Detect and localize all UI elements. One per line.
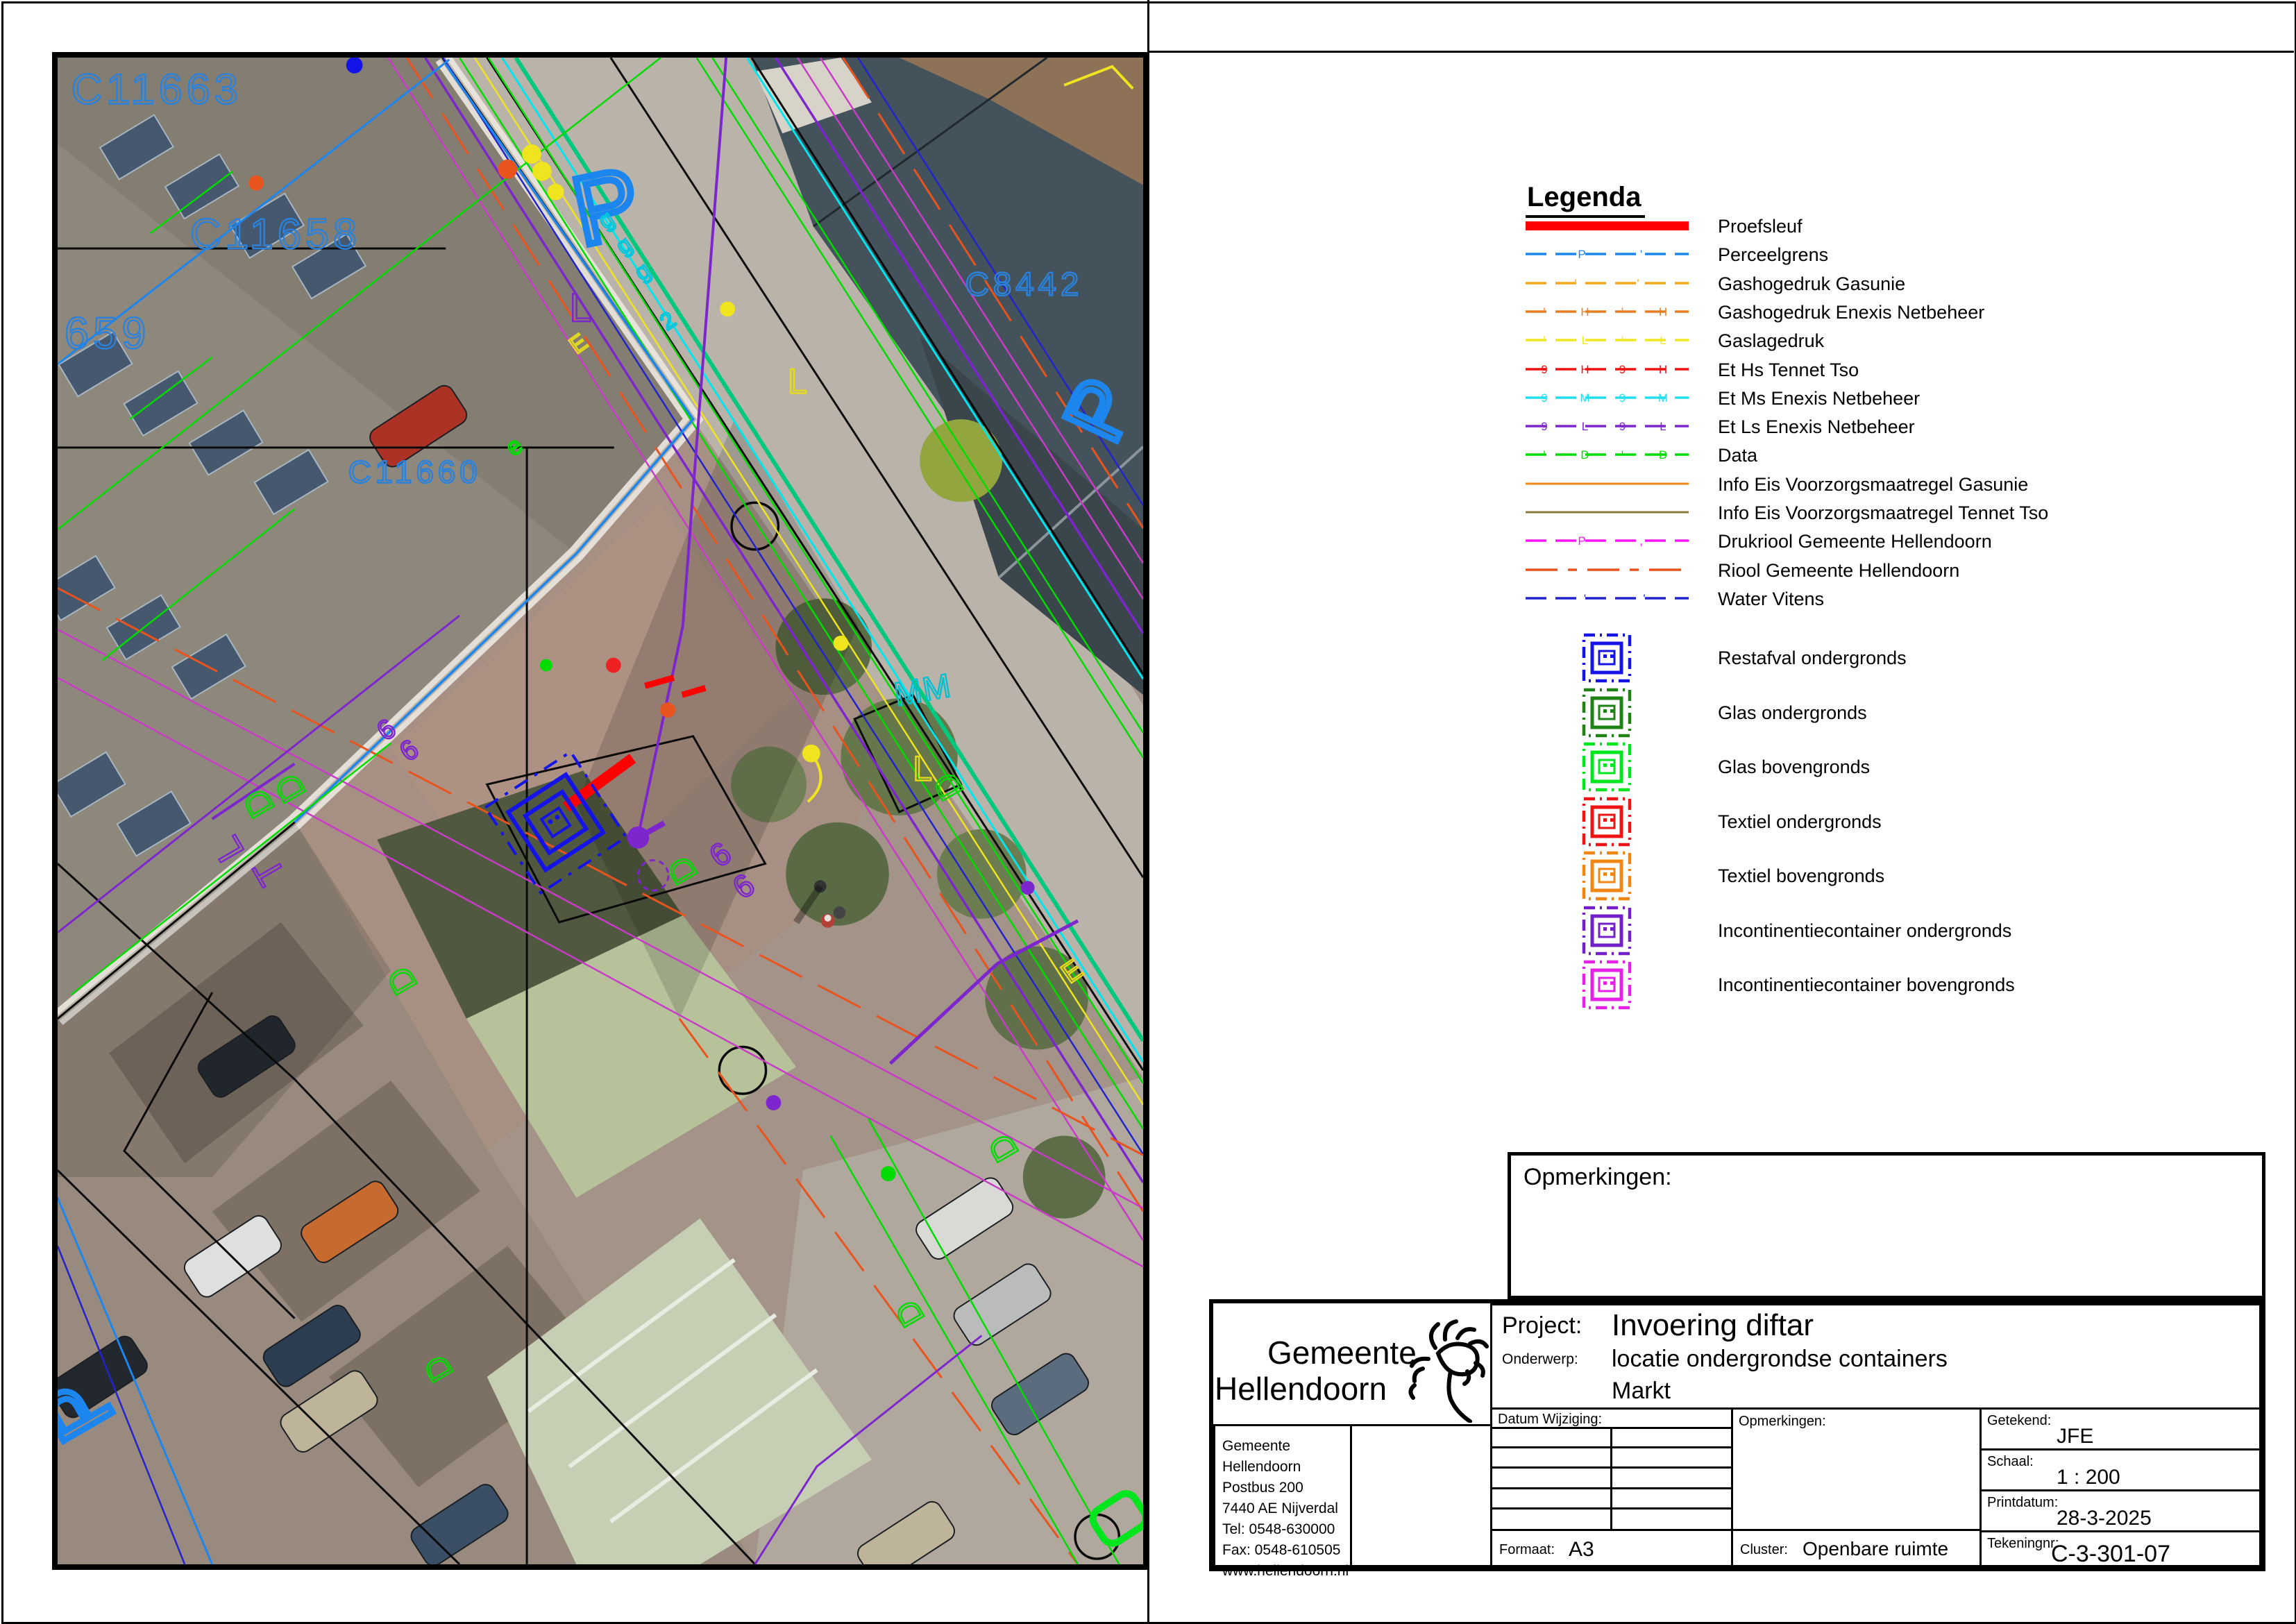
svg-text:': ' — [1543, 305, 1545, 319]
svg-text:': ' — [1621, 448, 1623, 462]
map-label: C11658 — [190, 210, 361, 258]
legend-line-sample — [1526, 214, 1689, 237]
svg-text:D: D — [1580, 448, 1589, 462]
container-symbol-icon — [1581, 850, 1632, 902]
formaat-cell: Formaat: A3 — [1490, 1529, 1733, 1567]
legend-line-sample — [1526, 501, 1689, 523]
schaal-cell: Schaal: 1 : 200 — [1980, 1448, 2261, 1491]
legend-item-label: Drukriool Gemeente Hellendoorn — [1718, 531, 1992, 552]
legend-item-label: Incontinentiecontainer ondergronds — [1718, 920, 2011, 942]
notes-label: Opmerkingen: — [1523, 1164, 1672, 1191]
legend-line-sample: 9L9L — [1526, 415, 1689, 437]
legend-item-label: Et Ls Enexis Netbeheer — [1718, 416, 1915, 438]
container-symbol-icon — [1581, 905, 1632, 956]
container-symbol-icon — [1581, 632, 1632, 684]
legend-item-label: Riool Gemeente Hellendoorn — [1718, 560, 1959, 582]
aerial-map: C11663C11658659C11660C8442PPPMMLLEE6666g… — [52, 52, 1149, 1570]
hellendoorn-deer-logo — [1387, 1305, 1491, 1423]
svg-text:L: L — [1582, 420, 1588, 433]
cluster-value: Openbare ruimte — [1803, 1538, 1948, 1560]
svg-text:': ' — [1543, 334, 1545, 347]
legend-item-label: Proefsleuf — [1718, 216, 1803, 237]
org-address: Gemeente Hellendoorn Postbus 200 7440 AE… — [1222, 1436, 1350, 1582]
container-symbol-icon — [1581, 687, 1632, 738]
svg-text:': ' — [1621, 305, 1623, 319]
printdatum-label: Printdatum: — [1987, 1495, 2058, 1511]
svg-text:L: L — [1660, 334, 1666, 347]
svg-text:,: , — [1639, 534, 1643, 548]
legend-item-label: Water Vitens — [1718, 589, 1824, 610]
subject-value-1: locatie ondergrondse containers — [1612, 1346, 1948, 1373]
container-symbol-icon — [1581, 796, 1632, 847]
datum-row-cell — [1490, 1446, 1612, 1469]
legend-item-label: Restafval ondergronds — [1718, 648, 1907, 669]
datum-row-cell — [1490, 1466, 1612, 1489]
svg-text:M: M — [1658, 391, 1668, 405]
tekeningnr-value: C-3-301-07 — [2051, 1541, 2170, 1568]
legend-line-sample: P, — [1526, 530, 1689, 552]
svg-text:D: D — [1659, 448, 1667, 462]
svg-text:H: H — [1659, 363, 1667, 376]
printdatum-value: 28-3-2025 — [2057, 1507, 2152, 1530]
legend-line-sample: 'D'D — [1526, 443, 1689, 466]
datum-row-cell — [1610, 1427, 1733, 1448]
subject-label: Onderwerp: — [1502, 1351, 1578, 1368]
svg-text:9: 9 — [1541, 420, 1547, 433]
legend-title: Legenda — [1526, 182, 1645, 218]
aerial-map-canvas: C11663C11658659C11660C8442PPPMMLLEE6666g… — [58, 58, 1143, 1564]
map-label: L — [569, 286, 593, 330]
legend-item-label: Perceelgrens — [1718, 244, 1828, 266]
legend-item-label: Gashogedruk Enexis Netbeheer — [1718, 302, 1984, 323]
legend-line-sample: P' — [1526, 243, 1689, 265]
legend-line-sample: 'L'L — [1526, 329, 1689, 351]
svg-text:H: H — [1659, 305, 1667, 319]
notes-box: Opmerkingen: — [1508, 1152, 2265, 1299]
legend-item-label: Gashogedruk Gasunie — [1718, 273, 1905, 295]
tekeningnr-label: Tekeningnr: — [1987, 1536, 2059, 1552]
datum-wijziging-label: Datum Wijziging: — [1498, 1412, 1602, 1428]
tb-opmerkingen-cell: Opmerkingen: — [1731, 1407, 1982, 1531]
legend-line-sample: '' — [1526, 272, 1689, 294]
datum-row-cell — [1610, 1507, 1733, 1531]
svg-text:': ' — [1640, 248, 1642, 261]
cluster-label: Cluster: — [1740, 1542, 1788, 1558]
legend-item-label: Et Hs Tennet Tso — [1718, 360, 1859, 381]
printdatum-cell: Printdatum: 28-3-2025 — [1980, 1489, 2261, 1532]
cluster-cell: Cluster: Openbare ruimte — [1731, 1529, 1982, 1567]
svg-text:P: P — [1578, 248, 1585, 261]
svg-text:L: L — [1660, 420, 1666, 433]
map-label: C11660 — [348, 454, 482, 489]
datum-row-cell — [1610, 1487, 1733, 1509]
legend-item-label: Gaslagedruk — [1718, 330, 1824, 352]
svg-text:': ' — [1574, 277, 1576, 290]
org-logo-cell: Gemeente Hellendoorn — [1213, 1303, 1492, 1424]
legend-item-label: Info Eis Voorzorgsmaatregel Gasunie — [1718, 474, 2028, 496]
legend-item-label: Data — [1718, 445, 1757, 466]
map-label: C11663 — [71, 65, 242, 113]
formaat-label: Formaat: — [1499, 1542, 1555, 1558]
legend-item-label: Et Ms Enexis Netbeheer — [1718, 388, 1920, 409]
title-block: Gemeente Hellendoorn Gemeente Hellendoor… — [1209, 1299, 2265, 1571]
datum-wijziging-header: Datum Wijziging: — [1490, 1407, 1733, 1429]
legend-item-label: Glas ondergronds — [1718, 702, 1867, 724]
empty-cell — [1350, 1424, 1492, 1567]
project-cell: Project: Invoering diftar Onderwerp: loc… — [1490, 1303, 2261, 1410]
org-name-line2: Hellendoorn — [1215, 1370, 1387, 1407]
svg-text:': ' — [1621, 334, 1623, 347]
container-symbol-icon — [1581, 741, 1632, 793]
map-label: 659 — [65, 310, 151, 358]
svg-text:': ' — [1543, 448, 1545, 462]
legend-line-sample: 9M9M — [1526, 387, 1689, 409]
getekend-cell: Getekend: JFE — [1980, 1407, 2261, 1450]
container-symbol-icon — [1581, 959, 1632, 1010]
svg-text:9: 9 — [1619, 420, 1626, 433]
formaat-value: A3 — [1569, 1538, 1594, 1562]
project-value: Invoering diftar — [1612, 1308, 1814, 1343]
datum-row-cell — [1610, 1466, 1733, 1489]
tb-opmerkingen-label: Opmerkingen: — [1739, 1414, 1826, 1430]
legend-line-sample: 9H9H — [1526, 358, 1689, 380]
datum-row-cell — [1610, 1446, 1733, 1469]
legend: Legenda ProefsleufP'Perceelgrens''Gashog… — [1526, 182, 2268, 1022]
map-label: L — [788, 362, 809, 400]
svg-text:9: 9 — [1541, 363, 1547, 376]
legend-line-sample: '' — [1526, 587, 1689, 609]
legend-item-label: Textiel ondergronds — [1718, 811, 1882, 833]
svg-text:H: H — [1580, 363, 1589, 376]
legend-item-label: Glas bovengronds — [1718, 756, 1870, 778]
legend-line-sample — [1526, 559, 1689, 581]
tekeningnr-cell: Tekeningnr: C-3-301-07 — [1980, 1530, 2261, 1567]
svg-text:L: L — [1582, 334, 1588, 347]
svg-text:M: M — [1580, 391, 1589, 405]
svg-text:': ' — [1584, 592, 1586, 605]
getekend-value: JFE — [2057, 1425, 2093, 1448]
right-panel-top-rule — [1149, 51, 2294, 53]
legend-item-label: Incontinentiecontainer bovengronds — [1718, 974, 2015, 996]
datum-row-cell — [1490, 1427, 1612, 1448]
svg-text:': ' — [1643, 592, 1645, 605]
legend-item-label: Textiel bovengronds — [1718, 865, 1884, 887]
schaal-label: Schaal: — [1987, 1454, 2034, 1470]
legend-line-sample — [1526, 473, 1689, 495]
legend-line-sample: 'H'H — [1526, 301, 1689, 323]
svg-text:P: P — [1578, 534, 1585, 548]
datum-row-cell — [1490, 1487, 1612, 1509]
svg-text:9: 9 — [1619, 363, 1626, 376]
svg-text:': ' — [1637, 277, 1639, 290]
legend-item-label: Info Eis Voorzorgsmaatregel Tennet Tso — [1718, 502, 2048, 524]
svg-text:9: 9 — [1619, 391, 1626, 405]
datum-row-cell — [1490, 1507, 1612, 1531]
schaal-value: 1 : 200 — [2057, 1466, 2120, 1489]
svg-text:9: 9 — [1541, 391, 1547, 405]
org-address-cell: Gemeente Hellendoorn Postbus 200 7440 AE… — [1213, 1424, 1352, 1567]
svg-text:H: H — [1580, 305, 1589, 319]
project-label: Project: — [1502, 1312, 1582, 1339]
getekend-label: Getekend: — [1987, 1413, 2051, 1429]
map-label: C8442 — [965, 266, 1083, 303]
subject-value-2: Markt — [1612, 1378, 1671, 1405]
